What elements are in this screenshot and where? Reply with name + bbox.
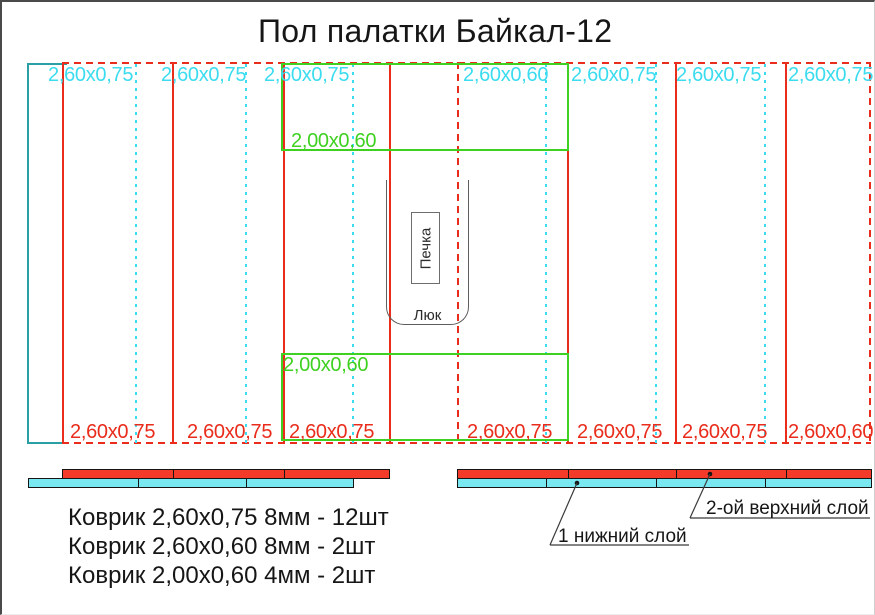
- legend-line: Коврик 2,00х0,60 4мм - 2шт: [68, 561, 389, 590]
- mat-label: 2,60х0,75: [289, 422, 374, 442]
- bottom-layer-left-edge-line: [27, 64, 29, 444]
- mat-label: 2,60х0,75: [48, 65, 133, 85]
- mat-label: 2,60х0,75: [577, 422, 662, 442]
- bottom-layer-callout-label: 1 нижний слой: [558, 526, 687, 548]
- bottom-layer-seam-line: [764, 64, 766, 443]
- mat-seam-line: [172, 63, 174, 443]
- mat-label: 2,60х0,75: [467, 422, 552, 442]
- strip-seam: [173, 470, 174, 478]
- strip-seam: [786, 470, 787, 478]
- bottom-layer-seam-line: [245, 64, 247, 443]
- strip-seam: [284, 470, 285, 478]
- strip-seam: [138, 479, 139, 487]
- mat-label: 2,60х0,60: [463, 65, 548, 85]
- mat-seam-line: [675, 63, 677, 443]
- page-title: Пол палатки Байкал-12: [258, 13, 612, 50]
- bottom-layer-seam-line: [655, 64, 657, 443]
- mat-label: 2,60х0,75: [264, 65, 349, 85]
- bottom-layer-strip-left: [28, 478, 354, 488]
- bottom-layer-bottom-edge-line: [27, 442, 67, 444]
- strip-seam: [568, 470, 569, 478]
- top-layer-strip-left: [62, 469, 390, 479]
- small-mat-label: 2,00х0,60: [283, 355, 368, 375]
- top-layer-strip-right: [457, 469, 872, 479]
- stove-outline: Печка: [411, 212, 440, 284]
- stove-label: Печка: [417, 227, 434, 269]
- bottom-layer-seam-line: [135, 64, 137, 443]
- mat-label: 2,60х0,75: [682, 422, 767, 442]
- small-mat-label: 2,00х0,60: [291, 131, 376, 151]
- strip-seam: [246, 479, 247, 487]
- drawing-page: Пол палатки Байкал-12 2,00х0,60 2,00х0,6…: [0, 0, 875, 615]
- hatch-label: Люк: [386, 307, 469, 324]
- mat-label: 2,60х0,75: [788, 65, 873, 85]
- strip-seam: [765, 479, 766, 487]
- mat-seam-line: [62, 63, 64, 443]
- floor-right-edge-dashed-line: [869, 62, 871, 444]
- strip-seam: [656, 479, 657, 487]
- mat-label: 2,60х0,75: [571, 65, 656, 85]
- top-layer-callout-label: 2-ой верхний слой: [706, 498, 869, 520]
- mat-label: 2,60х0,75: [70, 422, 155, 442]
- mat-label: 2,60х0,75: [187, 422, 272, 442]
- bottom-layer-strip-right: [457, 478, 872, 488]
- strip-seam: [546, 479, 547, 487]
- legend-line: Коврик 2,60х0,75 8мм - 12шт: [68, 503, 389, 532]
- strip-seam: [676, 470, 677, 478]
- mat-label: 2,60х0,75: [676, 65, 761, 85]
- mat-seam-line: [785, 63, 787, 443]
- mat-label: 2,60х0,75: [161, 65, 246, 85]
- legend: Коврик 2,60х0,75 8мм - 12шт Коврик 2,60х…: [68, 503, 389, 590]
- mat-label: 2,60х0,60: [788, 422, 873, 442]
- legend-line: Коврик 2,60х0,60 8мм - 2шт: [68, 532, 389, 561]
